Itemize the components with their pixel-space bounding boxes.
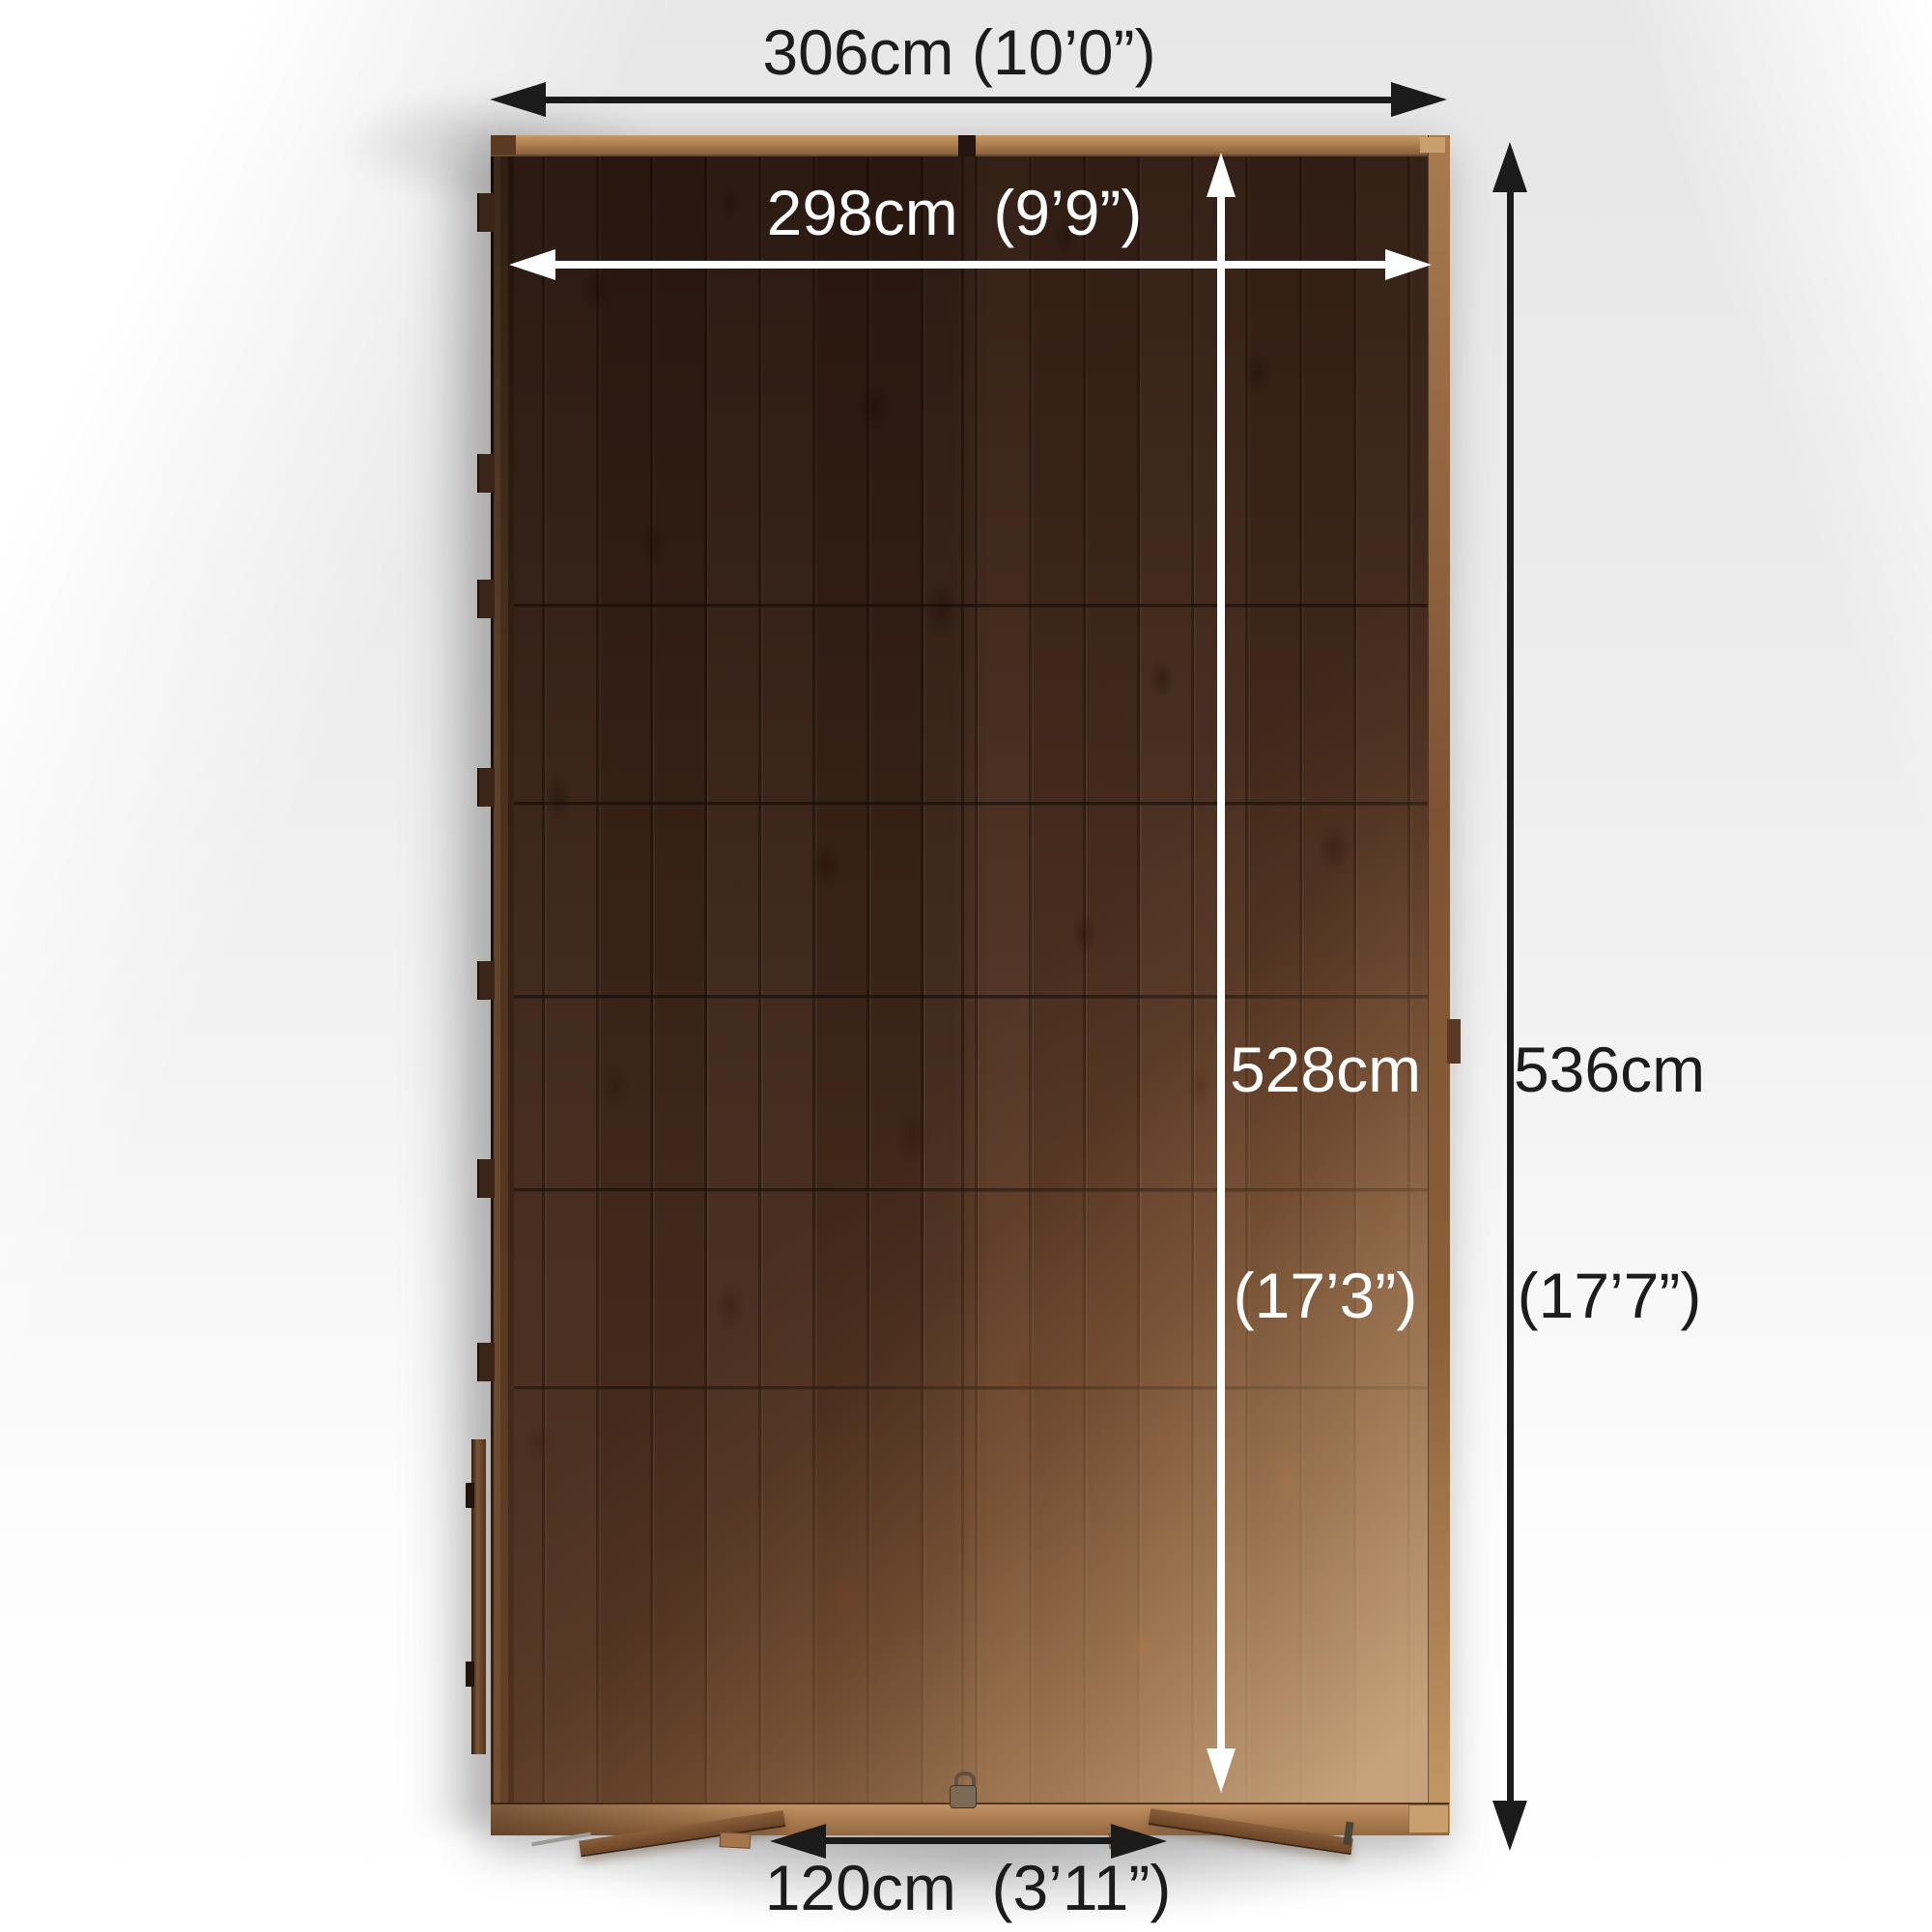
corner-block-top-right bbox=[1420, 137, 1445, 153]
ridge-joint-notch bbox=[958, 135, 976, 156]
outer-width-arrowhead-right bbox=[1391, 82, 1447, 117]
door-width-arrow bbox=[819, 1837, 1119, 1844]
outer-depth-arrowhead-bottom bbox=[1492, 1801, 1527, 1851]
door-width-label: 120cm (3’11”) bbox=[765, 1851, 1172, 1924]
inner-width-arrow bbox=[549, 261, 1391, 269]
shed-dimension-diagram: 306cm (10’0”) 298cm (9’9”) 528cm (17’3”)… bbox=[0, 0, 1932, 1932]
right-edge-bracket bbox=[1447, 1019, 1461, 1064]
padlock-icon bbox=[950, 1785, 977, 1808]
left-edge-bracket bbox=[477, 1159, 495, 1198]
corner-block-top-left bbox=[491, 135, 516, 155]
outer-width-arrow bbox=[531, 97, 1401, 103]
outer-depth-arrow bbox=[1507, 188, 1514, 1809]
outer-depth-metric: 536cm bbox=[1514, 1032, 1705, 1107]
left-edge-bracket bbox=[477, 768, 495, 807]
inner-width-label: 298cm (9’9”) bbox=[767, 176, 1143, 249]
left-edge-bracket bbox=[477, 454, 495, 493]
outer-depth-imperial: (17’7”) bbox=[1514, 1258, 1705, 1333]
inner-depth-label: 528cm (17’3”) bbox=[1230, 881, 1421, 1484]
right-wall-edge bbox=[1428, 135, 1450, 1833]
left-edge-bracket bbox=[477, 580, 495, 618]
left-edge-bracket bbox=[477, 1343, 495, 1381]
inner-depth-arrowhead-top bbox=[1207, 153, 1236, 197]
outer-depth-label: 536cm (17’7”) bbox=[1514, 881, 1705, 1484]
inner-depth-arrowhead-bottom bbox=[1207, 1748, 1236, 1793]
inner-depth-arrow bbox=[1217, 193, 1225, 1748]
inner-depth-imperial: (17’3”) bbox=[1230, 1258, 1421, 1333]
outer-depth-arrowhead-top bbox=[1492, 142, 1527, 192]
left-edge-bracket bbox=[477, 193, 495, 232]
left-edge-bracket bbox=[477, 961, 495, 1000]
corner-block-bottom-right bbox=[1408, 1804, 1449, 1833]
inner-depth-metric: 528cm bbox=[1230, 1032, 1421, 1107]
side-door-hinge bbox=[466, 1662, 474, 1687]
door-hinge-block bbox=[720, 1832, 752, 1849]
outer-width-label: 306cm (10’0”) bbox=[762, 15, 1155, 89]
inner-width-arrowhead-right bbox=[1385, 249, 1432, 280]
side-door-hinge bbox=[466, 1483, 474, 1508]
